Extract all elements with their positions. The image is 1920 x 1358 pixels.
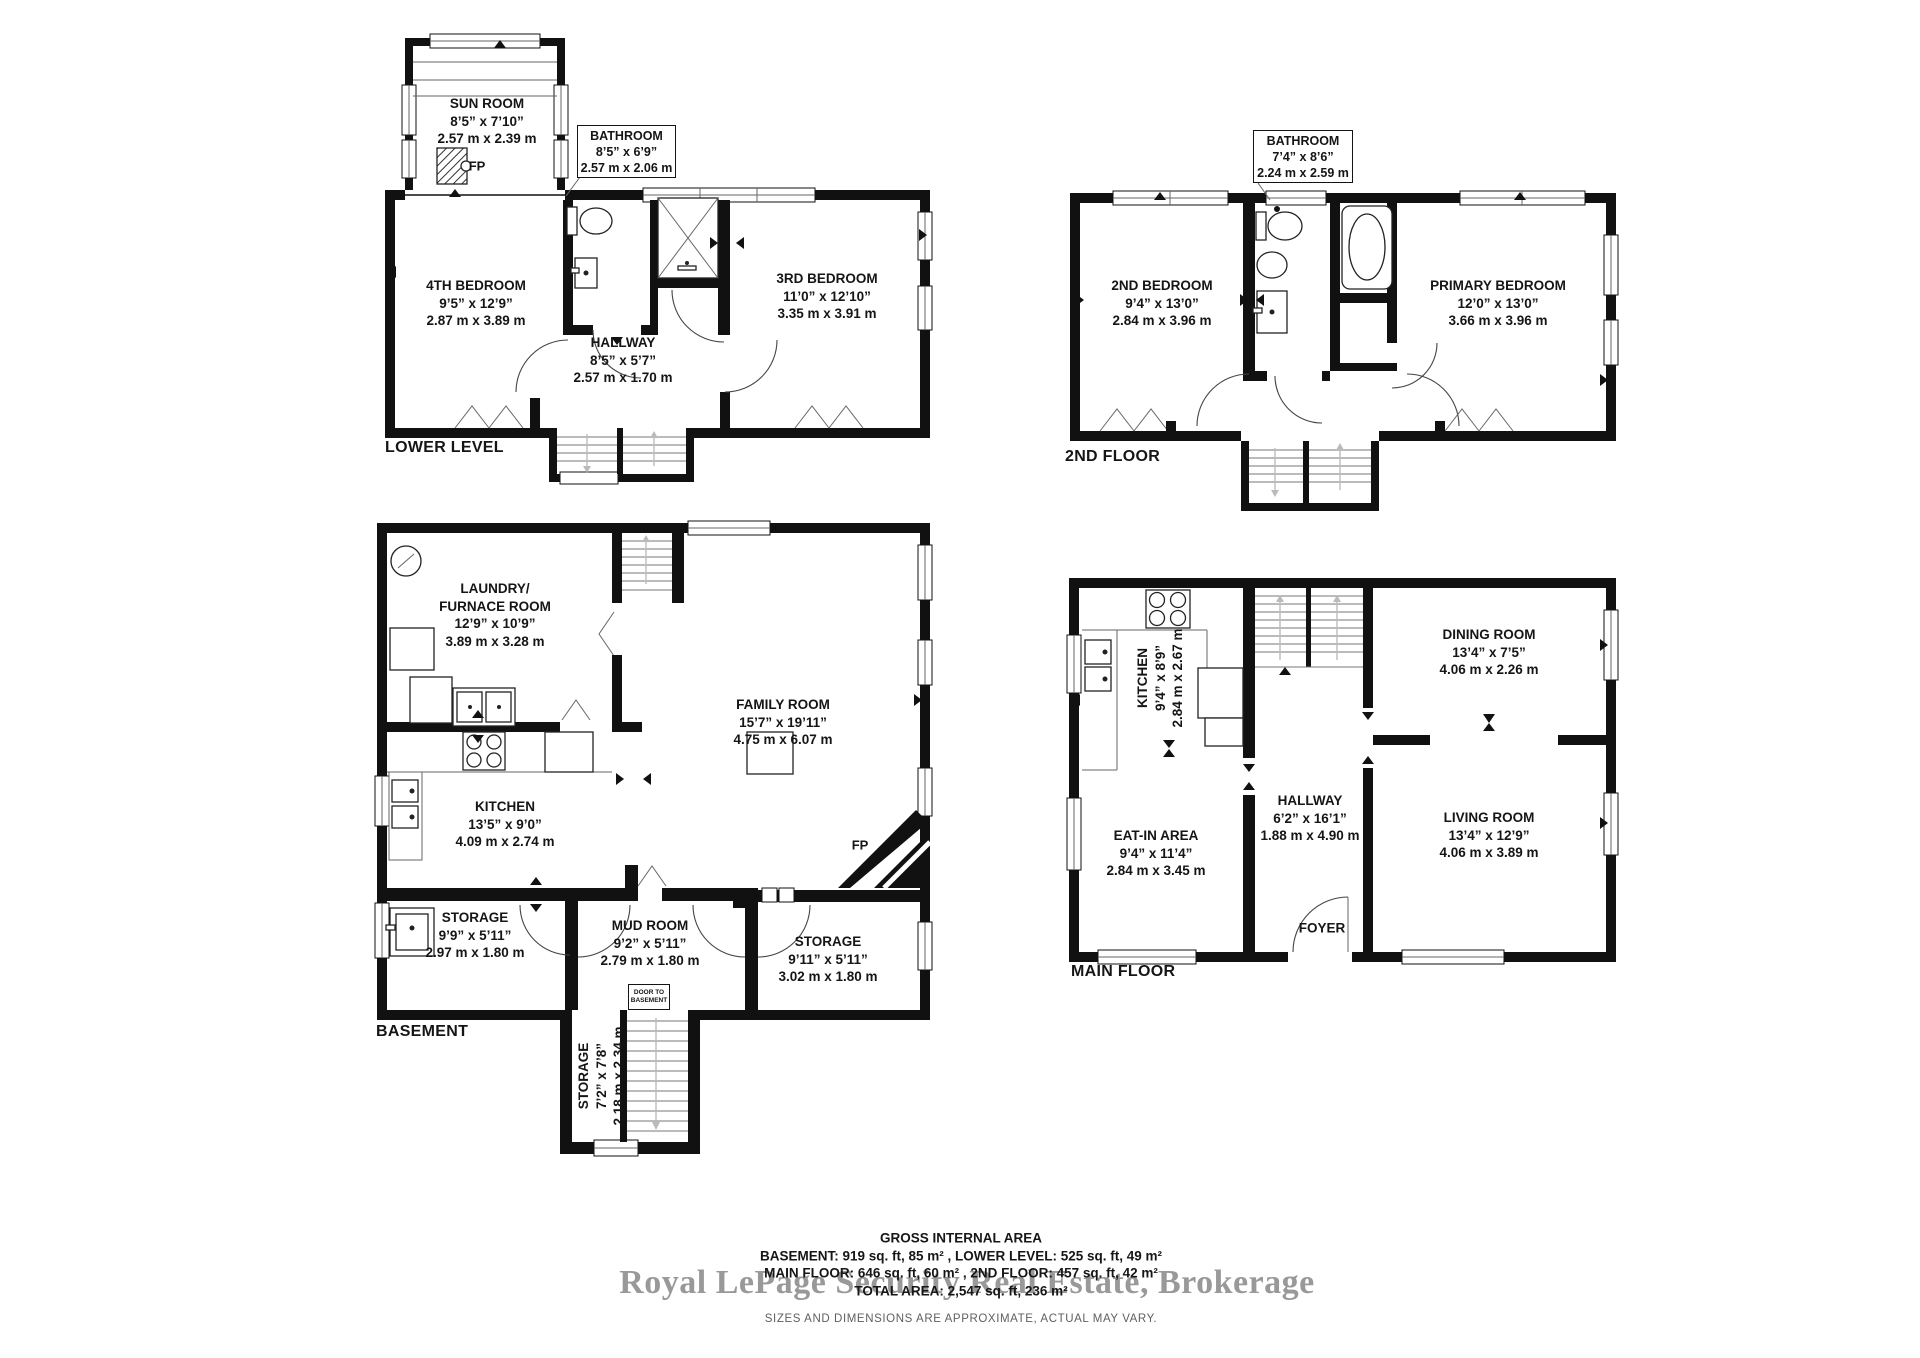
lower-shower <box>658 198 718 278</box>
door-to-basement-note: DOOR TO BASEMENT <box>628 984 670 1010</box>
room-label-basement-kitchen: KITCHEN 13’5” x 9’0” 4.09 m x 2.74 m <box>455 798 554 851</box>
room-name: DINING ROOM <box>1439 626 1538 644</box>
room-dim-metric: 2.97 m x 1.80 m <box>425 944 524 962</box>
room-label-storage-left: STORAGE 9’9” x 5’11” 2.97 m x 1.80 m <box>425 909 524 962</box>
room-label-foyer: FOYER <box>1299 919 1346 937</box>
floorplan-page: SUN ROOM 8’5” x 7’10” 2.57 m x 2.39 m FP… <box>0 0 1920 1358</box>
room-dim-imperial: 9’2” x 5’11” <box>600 934 699 952</box>
sunroom-fireplace <box>437 148 471 184</box>
opening-symbol <box>1483 714 1495 731</box>
room-dim-imperial: 12’9” x 10’9” <box>439 615 551 633</box>
lower-level-stairs <box>549 428 694 484</box>
area-line-basement-lower: BASEMENT: 919 sq. ft, 85 m² , LOWER LEVE… <box>760 1249 1162 1264</box>
main-kitchen-sinks <box>1085 640 1111 691</box>
room-dim-imperial: 13’4” x 7’5” <box>1439 643 1538 661</box>
room-name: EAT-IN AREA <box>1106 827 1205 845</box>
second-floor-stairs <box>1241 441 1379 511</box>
second-bathtub <box>1342 206 1392 289</box>
room-name: FAMILY ROOM <box>733 696 832 714</box>
lower-bath-toilet <box>567 207 612 235</box>
room-dim-metric: 4.75 m x 6.07 m <box>733 731 832 749</box>
main-counter <box>1205 718 1243 746</box>
room-name: STORAGE <box>575 1026 593 1125</box>
room-name: PRIMARY BEDROOM <box>1430 277 1566 295</box>
room-dim-metric: 2.24 m x 2.59 m <box>1257 165 1349 181</box>
area-line-main-second: MAIN FLOOR: 646 sq. ft, 60 m² , 2ND FLOO… <box>764 1266 1158 1281</box>
room-dim-metric: 2.57 m x 2.06 m <box>581 160 673 176</box>
room-label-lower-hallway: HALLWAY 8’5” x 5’7” 2.57 m x 1.70 m <box>573 334 672 387</box>
room-name: HALLWAY <box>573 334 672 352</box>
room-name: MUD ROOM <box>600 917 699 935</box>
laundry-appliance-2 <box>410 677 452 723</box>
fireplace-label: FP <box>469 159 486 174</box>
laundry-appliance <box>390 628 434 670</box>
room-name: 2ND BEDROOM <box>1111 277 1212 295</box>
basement-upper-stairs <box>612 523 684 603</box>
room-dim-imperial: 13’5” x 9’0” <box>455 815 554 833</box>
room-dim-metric: 4.06 m x 2.26 m <box>1439 661 1538 679</box>
room-dim-imperial: 12’0” x 13’0” <box>1430 294 1566 312</box>
room-dim-imperial: 8’5” x 7’10” <box>437 112 536 130</box>
room-dim-imperial: 15’7” x 19’11” <box>733 713 832 731</box>
door-note-line2: BASEMENT <box>631 997 667 1005</box>
second-bath-toilet <box>1256 212 1302 240</box>
room-dim-metric: 3.02 m x 1.80 m <box>778 968 877 986</box>
room-name: BATHROOM <box>1267 133 1340 149</box>
room-dim-imperial: 9’9” x 5’11” <box>425 926 524 944</box>
basement-kitchen-sinks <box>392 780 418 828</box>
callout-lower-bathroom: BATHROOM 8’5” x 6’9” 2.57 m x 2.06 m <box>577 125 676 178</box>
disclaimer-text: SIZES AND DIMENSIONS ARE APPROXIMATE, AC… <box>765 1313 1157 1325</box>
room-dim-imperial: 11’0” x 12’10” <box>776 287 877 305</box>
room-label-primary-bedroom: PRIMARY BEDROOM 12’0” x 13’0” 3.66 m x 3… <box>1430 277 1566 330</box>
room-dim-imperial: 6’2” x 16’1” <box>1260 809 1359 827</box>
room-label-storage-right: STORAGE 9’11” x 5’11” 3.02 m x 1.80 m <box>778 933 877 986</box>
room-dim-imperial: 7’4” x 8’6” <box>1272 149 1333 165</box>
room-dim-imperial: 9’4” x 8’9” <box>1151 628 1169 727</box>
room-name-2: FURNACE ROOM <box>439 598 551 616</box>
room-name: STORAGE <box>778 933 877 951</box>
room-name: 4TH BEDROOM <box>426 277 526 295</box>
fireplace-label-basement: FP <box>852 838 869 853</box>
room-label-2nd-bedroom: 2ND BEDROOM 9’4” x 13’0” 2.84 m x 3.96 m <box>1111 277 1212 330</box>
laundry-double-sink <box>453 688 515 726</box>
second-bath-sink <box>1257 252 1287 278</box>
room-dim-metric: 4.06 m x 3.89 m <box>1439 844 1538 862</box>
plan-title-lower-level: LOWER LEVEL <box>385 439 504 457</box>
room-dim-metric: 2.87 m x 3.89 m <box>426 312 526 330</box>
room-name: BATHROOM <box>590 128 663 144</box>
room-dim-metric: 1.88 m x 4.90 m <box>1260 827 1359 845</box>
room-name: KITCHEN <box>1134 628 1152 727</box>
room-label-main-hallway: HALLWAY 6’2” x 16’1” 1.88 m x 4.90 m <box>1260 792 1359 845</box>
main-floor-stairs <box>1255 588 1363 667</box>
room-name: SUN ROOM <box>437 95 536 113</box>
room-dim-metric: 3.89 m x 3.28 m <box>439 633 551 651</box>
room-dim-metric: 2.84 m x 3.96 m <box>1111 312 1212 330</box>
room-label-4th-bedroom: 4TH BEDROOM 9’5” x 12’9” 2.87 m x 3.89 m <box>426 277 526 330</box>
plan-title-basement: BASEMENT <box>376 1023 468 1041</box>
room-label-living-room: LIVING ROOM 13’4” x 12’9” 4.06 m x 3.89 … <box>1439 809 1538 862</box>
room-dim-imperial: 8’5” x 5’7” <box>573 351 672 369</box>
main-stove <box>1146 590 1190 628</box>
room-dim-imperial: 8’5” x 6’9” <box>596 144 657 160</box>
room-dim-imperial: 13’4” x 12’9” <box>1439 826 1538 844</box>
gross-internal-area-title: GROSS INTERNAL AREA <box>880 1231 1042 1246</box>
room-dim-imperial: 9’5” x 12’9” <box>426 294 526 312</box>
room-dim-metric: 4.09 m x 2.74 m <box>455 833 554 851</box>
room-dim-imperial: 9’11” x 5’11” <box>778 950 877 968</box>
room-label-storage-bottom: STORAGE 7’2” x 7’8” 2.18 m x 2.34 m <box>575 1026 628 1125</box>
room-name: FOYER <box>1299 919 1346 937</box>
room-dim-imperial: 7’2” x 7’8” <box>592 1026 610 1125</box>
room-dim-metric: 2.57 m x 2.39 m <box>437 130 536 148</box>
main-fridge <box>1198 668 1243 718</box>
room-name: KITCHEN <box>455 798 554 816</box>
room-name: 3RD BEDROOM <box>776 270 877 288</box>
room-label-sun-room: SUN ROOM 8’5” x 7’10” 2.57 m x 2.39 m <box>437 95 536 148</box>
room-label-laundry-furnace: LAUNDRY/ FURNACE ROOM 12’9” x 10’9” 3.89… <box>439 580 551 650</box>
area-line-total: TOTAL AREA: 2,547 sq. ft, 236 m² <box>854 1284 1067 1299</box>
room-label-family-room: FAMILY ROOM 15’7” x 19’11” 4.75 m x 6.07… <box>733 696 832 749</box>
room-dim-metric: 2.18 m x 2.34 m <box>610 1026 628 1125</box>
room-label-main-kitchen: KITCHEN 9’4” x 8’9” 2.84 m x 2.67 m <box>1134 628 1187 727</box>
room-dim-imperial: 9’4” x 11’4” <box>1106 844 1205 862</box>
room-name: HALLWAY <box>1260 792 1359 810</box>
room-label-dining-room: DINING ROOM 13’4” x 7’5” 4.06 m x 2.26 m <box>1439 626 1538 679</box>
room-label-mud-room: MUD ROOM 9’2” x 5’11” 2.79 m x 1.80 m <box>600 917 699 970</box>
room-dim-metric: 2.79 m x 1.80 m <box>600 952 699 970</box>
room-name: LAUNDRY/ <box>439 580 551 598</box>
room-label-3rd-bedroom: 3RD BEDROOM 11’0” x 12’10” 3.35 m x 3.91… <box>776 270 877 323</box>
plan-title-2nd-floor: 2ND FLOOR <box>1065 448 1160 466</box>
second-bath-vanity <box>1253 291 1287 333</box>
lower-bath-sink <box>571 258 597 288</box>
room-dim-imperial: 9’4” x 13’0” <box>1111 294 1212 312</box>
room-dim-metric: 3.66 m x 3.96 m <box>1430 312 1566 330</box>
basement-clock-gauge <box>391 546 421 576</box>
door-note-line1: DOOR TO <box>634 989 664 997</box>
room-name: STORAGE <box>425 909 524 927</box>
room-dim-metric: 2.84 m x 2.67 m <box>1169 628 1187 727</box>
room-label-eat-in-area: EAT-IN AREA 9’4” x 11’4” 2.84 m x 3.45 m <box>1106 827 1205 880</box>
floorplan-linework <box>0 0 1920 1358</box>
plan-title-main-floor: MAIN FLOOR <box>1071 963 1175 981</box>
basement-stove <box>463 732 505 770</box>
callout-second-bathroom: BATHROOM 7’4” x 8’6” 2.24 m x 2.59 m <box>1253 130 1353 183</box>
room-dim-metric: 2.84 m x 3.45 m <box>1106 862 1205 880</box>
basement-cabinet <box>545 732 593 772</box>
room-dim-metric: 3.35 m x 3.91 m <box>776 305 877 323</box>
room-dim-metric: 2.57 m x 1.70 m <box>573 369 672 387</box>
room-name: LIVING ROOM <box>1439 809 1538 827</box>
